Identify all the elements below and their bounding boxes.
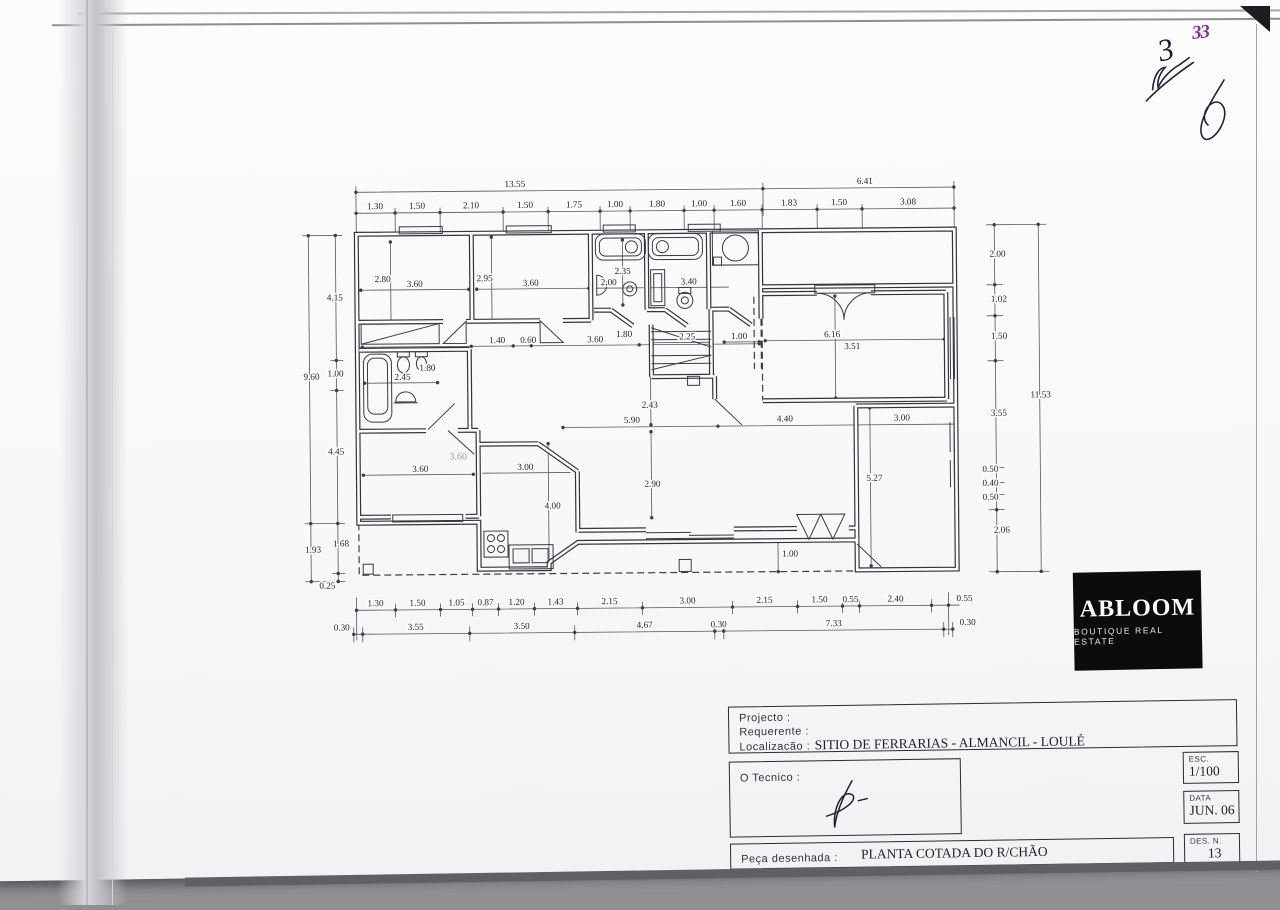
dimension-label: 1.00 bbox=[607, 199, 624, 209]
dimension-label: 0.30 bbox=[334, 622, 351, 632]
dimension-label: 4.67 bbox=[637, 620, 654, 630]
door-bedroom1 bbox=[443, 321, 466, 343]
dimension-label: 3.60 bbox=[523, 278, 540, 288]
dimension-label: 9.60 bbox=[303, 372, 320, 382]
tecnico-label: O Tecnico : bbox=[740, 772, 800, 785]
dimension-label: 1.30 bbox=[367, 598, 384, 608]
localizacao-value: SITIO DE FERRARIAS - ALMANCIL - LOULÉ bbox=[815, 733, 1085, 752]
sheet-frame-right bbox=[1256, 24, 1257, 872]
dimension-label: 1.00 bbox=[691, 198, 708, 208]
dimension-label: 2.25 bbox=[679, 331, 696, 341]
dimension-label: 1.43 bbox=[547, 596, 564, 606]
project-info-box: Projecto : Requerente : Localizacão : SI… bbox=[728, 699, 1238, 754]
logo-tagline: BOUTIQUE REAL ESTATE bbox=[1074, 624, 1202, 646]
dimension-label: 0.50 bbox=[983, 492, 1000, 502]
corner-fold-mark bbox=[1240, 6, 1270, 32]
dimension-label: 3.60 bbox=[412, 464, 429, 474]
sink-1 bbox=[623, 282, 637, 296]
dimension-label: 1.80 bbox=[419, 363, 436, 373]
dimension-lines bbox=[302, 180, 1050, 642]
dimension-label: 2.90 bbox=[644, 479, 661, 489]
dimension-label: 1.75 bbox=[566, 199, 583, 209]
toilet-2 bbox=[677, 287, 693, 308]
drawing-number-box: DES. N. 13 bbox=[1184, 833, 1240, 865]
data-value: JUN. 06 bbox=[1189, 802, 1238, 819]
dimension-label: 4.15 bbox=[327, 292, 344, 302]
dimension-label: 3.40 bbox=[681, 276, 698, 286]
dimension-label: 1.00 bbox=[782, 548, 799, 558]
fold-crease-line bbox=[112, 30, 113, 905]
dimension-label: 4.00 bbox=[545, 501, 562, 511]
dimension-label: 3.60 bbox=[449, 451, 467, 462]
dimension-label: 0.55 bbox=[956, 593, 973, 603]
toilet-left bbox=[397, 352, 409, 373]
dimension-label: 6.16 bbox=[824, 329, 841, 339]
dimension-label: 5.27 bbox=[866, 473, 883, 483]
dimension-label: 1.05 bbox=[448, 597, 465, 607]
dimension-label: 2.15 bbox=[756, 595, 773, 605]
dimension-label: 3.00 bbox=[679, 595, 696, 605]
dimension-label: 2.00 bbox=[989, 249, 1006, 259]
dimension-label: 1.40 bbox=[489, 335, 506, 345]
dimension-label: 1.60 bbox=[730, 198, 747, 208]
book-fold-shading bbox=[58, 0, 128, 905]
door-bathroom-left bbox=[428, 403, 455, 429]
door-bedroom2 bbox=[540, 320, 563, 342]
terrace-column bbox=[679, 559, 691, 571]
dimension-label: 1.50 bbox=[409, 598, 426, 608]
dimension-label: 1.80 bbox=[616, 329, 633, 339]
scanned-floor-plan-page: { "scan": { "purple_mark": "33", "pen_ma… bbox=[0, 0, 1280, 905]
dimension-label: 1.50 bbox=[517, 200, 534, 210]
dimension-label: 1.50 bbox=[409, 201, 426, 211]
dimension-label: 1.93 bbox=[305, 545, 322, 555]
scale-box: ESC. 1/100 bbox=[1183, 751, 1239, 784]
dimension-label: 4.40 bbox=[777, 413, 794, 423]
dimension-label: 3.55 bbox=[991, 408, 1008, 418]
date-box: DATA JUN. 06 bbox=[1183, 790, 1239, 824]
localizacao-label: Localizacão : bbox=[739, 740, 810, 753]
peca-label: Peça desenhada : bbox=[741, 852, 838, 865]
dimension-label: 0.60 bbox=[520, 335, 537, 345]
dimension-label: 2.80 bbox=[375, 274, 392, 284]
wardrobe bbox=[361, 324, 439, 345]
dimension-label: 1.80 bbox=[649, 199, 666, 209]
dimension-label: 7.33 bbox=[826, 618, 843, 628]
dimension-label: 2.35 bbox=[615, 266, 632, 276]
dimension-label: 1.20 bbox=[508, 597, 525, 607]
logo-name: ABLOOM bbox=[1080, 594, 1196, 623]
dimension-label: 2.95 bbox=[477, 273, 494, 283]
abloom-logo: ABLOOM BOUTIQUE REAL ESTATE bbox=[1073, 570, 1203, 670]
des-value: 13 bbox=[1190, 845, 1239, 862]
dimension-label: 2.40 bbox=[887, 594, 904, 604]
dimension-label: 0.30 bbox=[711, 619, 728, 629]
fold-crease-line bbox=[86, 0, 88, 905]
dimension-label: 1.00 bbox=[731, 331, 748, 341]
dimension-label: 0.87 bbox=[477, 597, 494, 607]
dimension-label: 3.50 bbox=[514, 621, 531, 631]
dimension-label: 3.00 bbox=[517, 462, 534, 472]
door-right-room bbox=[857, 544, 881, 567]
dimension-label: 0.55 bbox=[842, 594, 859, 604]
dimension-label: 6.41 bbox=[857, 176, 874, 186]
peca-value: PLANTA COTADA DO R/CHÃO bbox=[861, 844, 1048, 863]
dimension-label: 3.00 bbox=[894, 412, 911, 422]
dimension-label: 1.83 bbox=[781, 197, 798, 207]
sheet-content: 13.556.411.301.502.101.501.751.001.801.0… bbox=[0, 0, 1280, 910]
dimension-label: 0.40 bbox=[982, 478, 999, 488]
dimension-label: 2.45 bbox=[394, 372, 411, 382]
dimension-label: 2.00 bbox=[601, 277, 618, 287]
kitchen-sink bbox=[509, 545, 553, 569]
dimension-label: 11.53 bbox=[1030, 389, 1051, 399]
bathtub-1 bbox=[595, 234, 645, 260]
dimension-label: 0.50 bbox=[982, 464, 999, 474]
dimension-label: 1.50 bbox=[991, 331, 1008, 341]
double-door bbox=[815, 285, 875, 321]
kitchen-stove bbox=[484, 531, 508, 557]
esc-value: 1/100 bbox=[1189, 763, 1238, 780]
dimension-label: 2.10 bbox=[463, 200, 480, 210]
dimension-label: 3.08 bbox=[900, 196, 917, 206]
dimension-label: 3.55 bbox=[408, 622, 425, 632]
terrace-dashed-outline bbox=[357, 296, 857, 575]
dimension-label: 1.68 bbox=[333, 538, 350, 548]
dimension-label: 5.90 bbox=[624, 415, 641, 425]
technician-signature bbox=[800, 774, 921, 834]
dimension-label: 1.02 bbox=[991, 294, 1008, 304]
dimension-label: 2.06 bbox=[994, 525, 1011, 535]
dimension-label: 3.51 bbox=[844, 341, 861, 351]
shower bbox=[712, 231, 758, 265]
fireplace bbox=[797, 514, 845, 539]
dimension-label: 1.30 bbox=[367, 201, 384, 211]
dimension-label: 1.00 bbox=[327, 368, 344, 378]
dimension-label: 1.50 bbox=[831, 197, 848, 207]
dimension-label: 1.50 bbox=[811, 594, 828, 604]
floor-plan-drawing: 13.556.411.301.502.101.501.751.001.801.0… bbox=[298, 166, 1072, 667]
dimension-label: 3.60 bbox=[587, 334, 604, 344]
dimension-label: 2.43 bbox=[642, 400, 659, 410]
technician-box: O Tecnico : bbox=[729, 758, 962, 837]
dimension-label: 4.45 bbox=[328, 446, 345, 456]
bathtub-left bbox=[363, 354, 392, 422]
bathtub-2 bbox=[648, 233, 702, 259]
dimension-label: 2.15 bbox=[601, 596, 618, 606]
dimension-label: 13.55 bbox=[504, 179, 525, 189]
terrace-column bbox=[363, 564, 373, 574]
basin-left bbox=[394, 392, 418, 403]
handwritten-page-number: 33 bbox=[1191, 21, 1210, 45]
door-living bbox=[715, 399, 742, 425]
dimension-label: 3.60 bbox=[407, 279, 424, 289]
dimension-label: 0.25 bbox=[319, 580, 336, 590]
dimension-label: 0.30 bbox=[960, 617, 977, 627]
